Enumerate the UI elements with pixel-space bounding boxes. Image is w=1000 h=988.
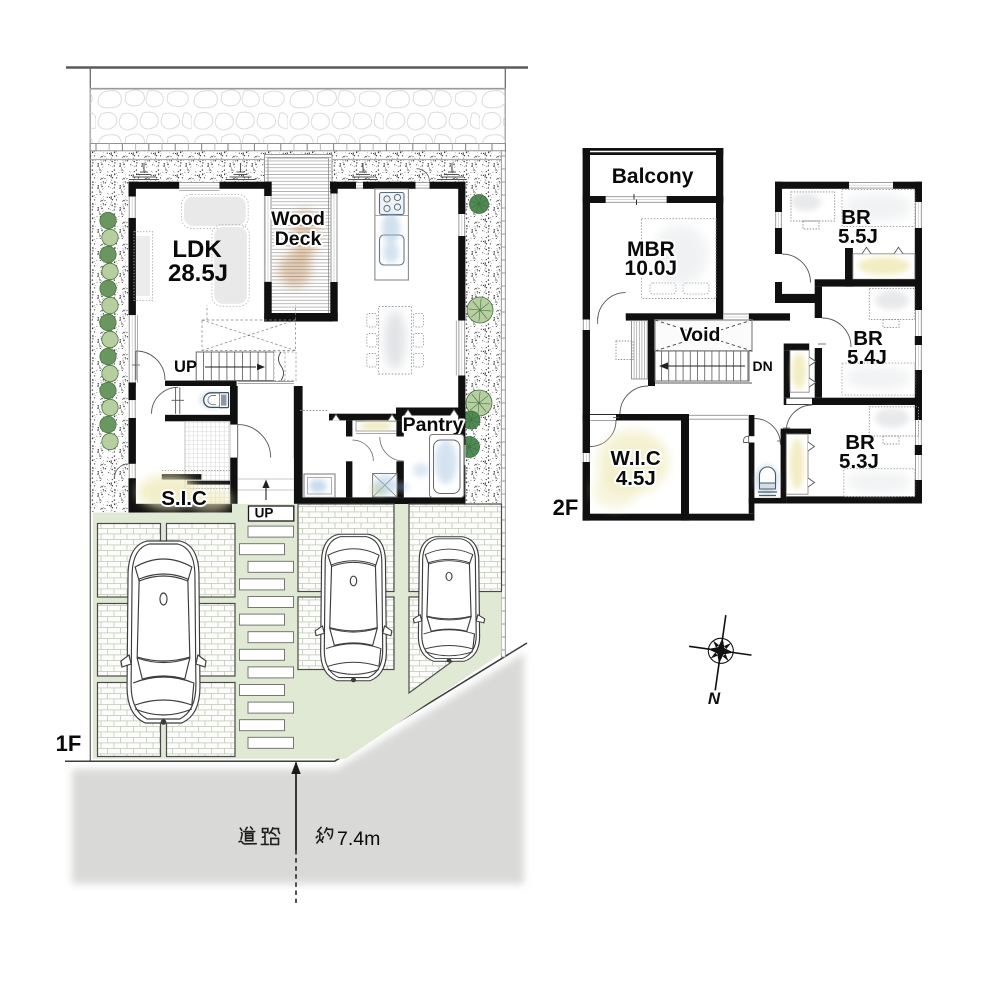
svg-text:1F: 1F xyxy=(56,731,82,756)
svg-text:2F: 2F xyxy=(553,495,579,520)
svg-text:4.5J: 4.5J xyxy=(616,467,656,490)
svg-text:Wood: Wood xyxy=(271,208,325,230)
svg-text:7.4m: 7.4m xyxy=(337,828,380,850)
svg-text:Void: Void xyxy=(680,324,721,346)
svg-text:Balcony: Balcony xyxy=(612,165,694,188)
svg-text:Deck: Deck xyxy=(275,228,322,250)
svg-text:S.I.C: S.I.C xyxy=(161,487,207,510)
svg-text:UP: UP xyxy=(255,506,274,521)
svg-text:5.3J: 5.3J xyxy=(839,450,879,473)
svg-text:N: N xyxy=(708,689,721,708)
svg-text:UP: UP xyxy=(174,358,197,376)
svg-text:10.0J: 10.0J xyxy=(625,257,678,280)
svg-text:5.5J: 5.5J xyxy=(838,225,878,248)
svg-text:5.4J: 5.4J xyxy=(847,346,887,369)
svg-text:Pantry: Pantry xyxy=(403,414,464,436)
svg-text:28.5J: 28.5J xyxy=(168,260,228,287)
svg-text:DN: DN xyxy=(753,358,773,374)
svg-text:LDK: LDK xyxy=(172,236,222,263)
